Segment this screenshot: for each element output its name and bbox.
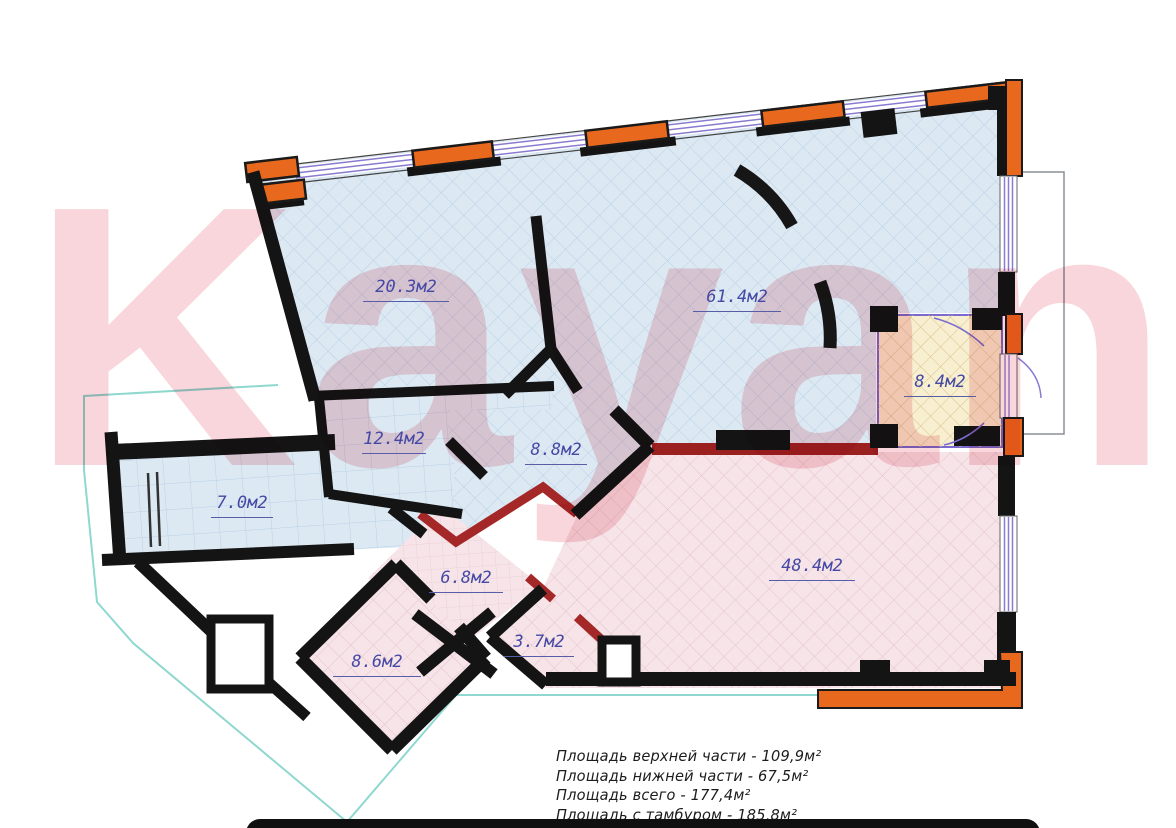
room-area-label-61-4: 61.4м2 [693,287,781,312]
label-underline [333,676,421,677]
room-area-label-6-8: 6.8м2 [429,568,503,593]
room-area-label-8-6: 8.6м2 [333,652,421,677]
label-underline [504,656,574,657]
label-underline [769,580,855,581]
room-area-label-3-7: 3.7м2 [504,632,574,657]
summary-line-total: Площадь всего - 177,4м² [556,786,821,806]
label-underline [211,517,273,518]
floor-plan-drawing [0,0,1176,828]
label-underline [429,592,503,593]
room-area-label-8-8: 8.8м2 [525,440,587,465]
label-underline [904,396,976,397]
room-area-label-20-3: 20.3м2 [363,277,449,302]
label-underline [362,453,426,454]
label-underline [363,301,449,302]
room-area-label-8-4: 8.4м2 [904,372,976,397]
room-area-label-48-4: 48.4м2 [769,556,855,581]
bottom-bar [246,819,1040,828]
room-area-label-7-0: 7.0м2 [211,493,273,518]
area-summary: Площадь верхней части - 109,9м² Площадь … [556,747,821,825]
label-underline [693,311,781,312]
floor-plan-page: Kayan 20.3м2 61.4м2 8.4м2 12.4м2 8.8м2 7… [0,0,1176,828]
room-area-label-12-4: 12.4м2 [362,429,426,454]
summary-line-upper: Площадь верхней части - 109,9м² [556,747,821,767]
summary-line-lower: Площадь нижней части - 67,5м² [556,767,821,787]
label-underline [525,464,587,465]
